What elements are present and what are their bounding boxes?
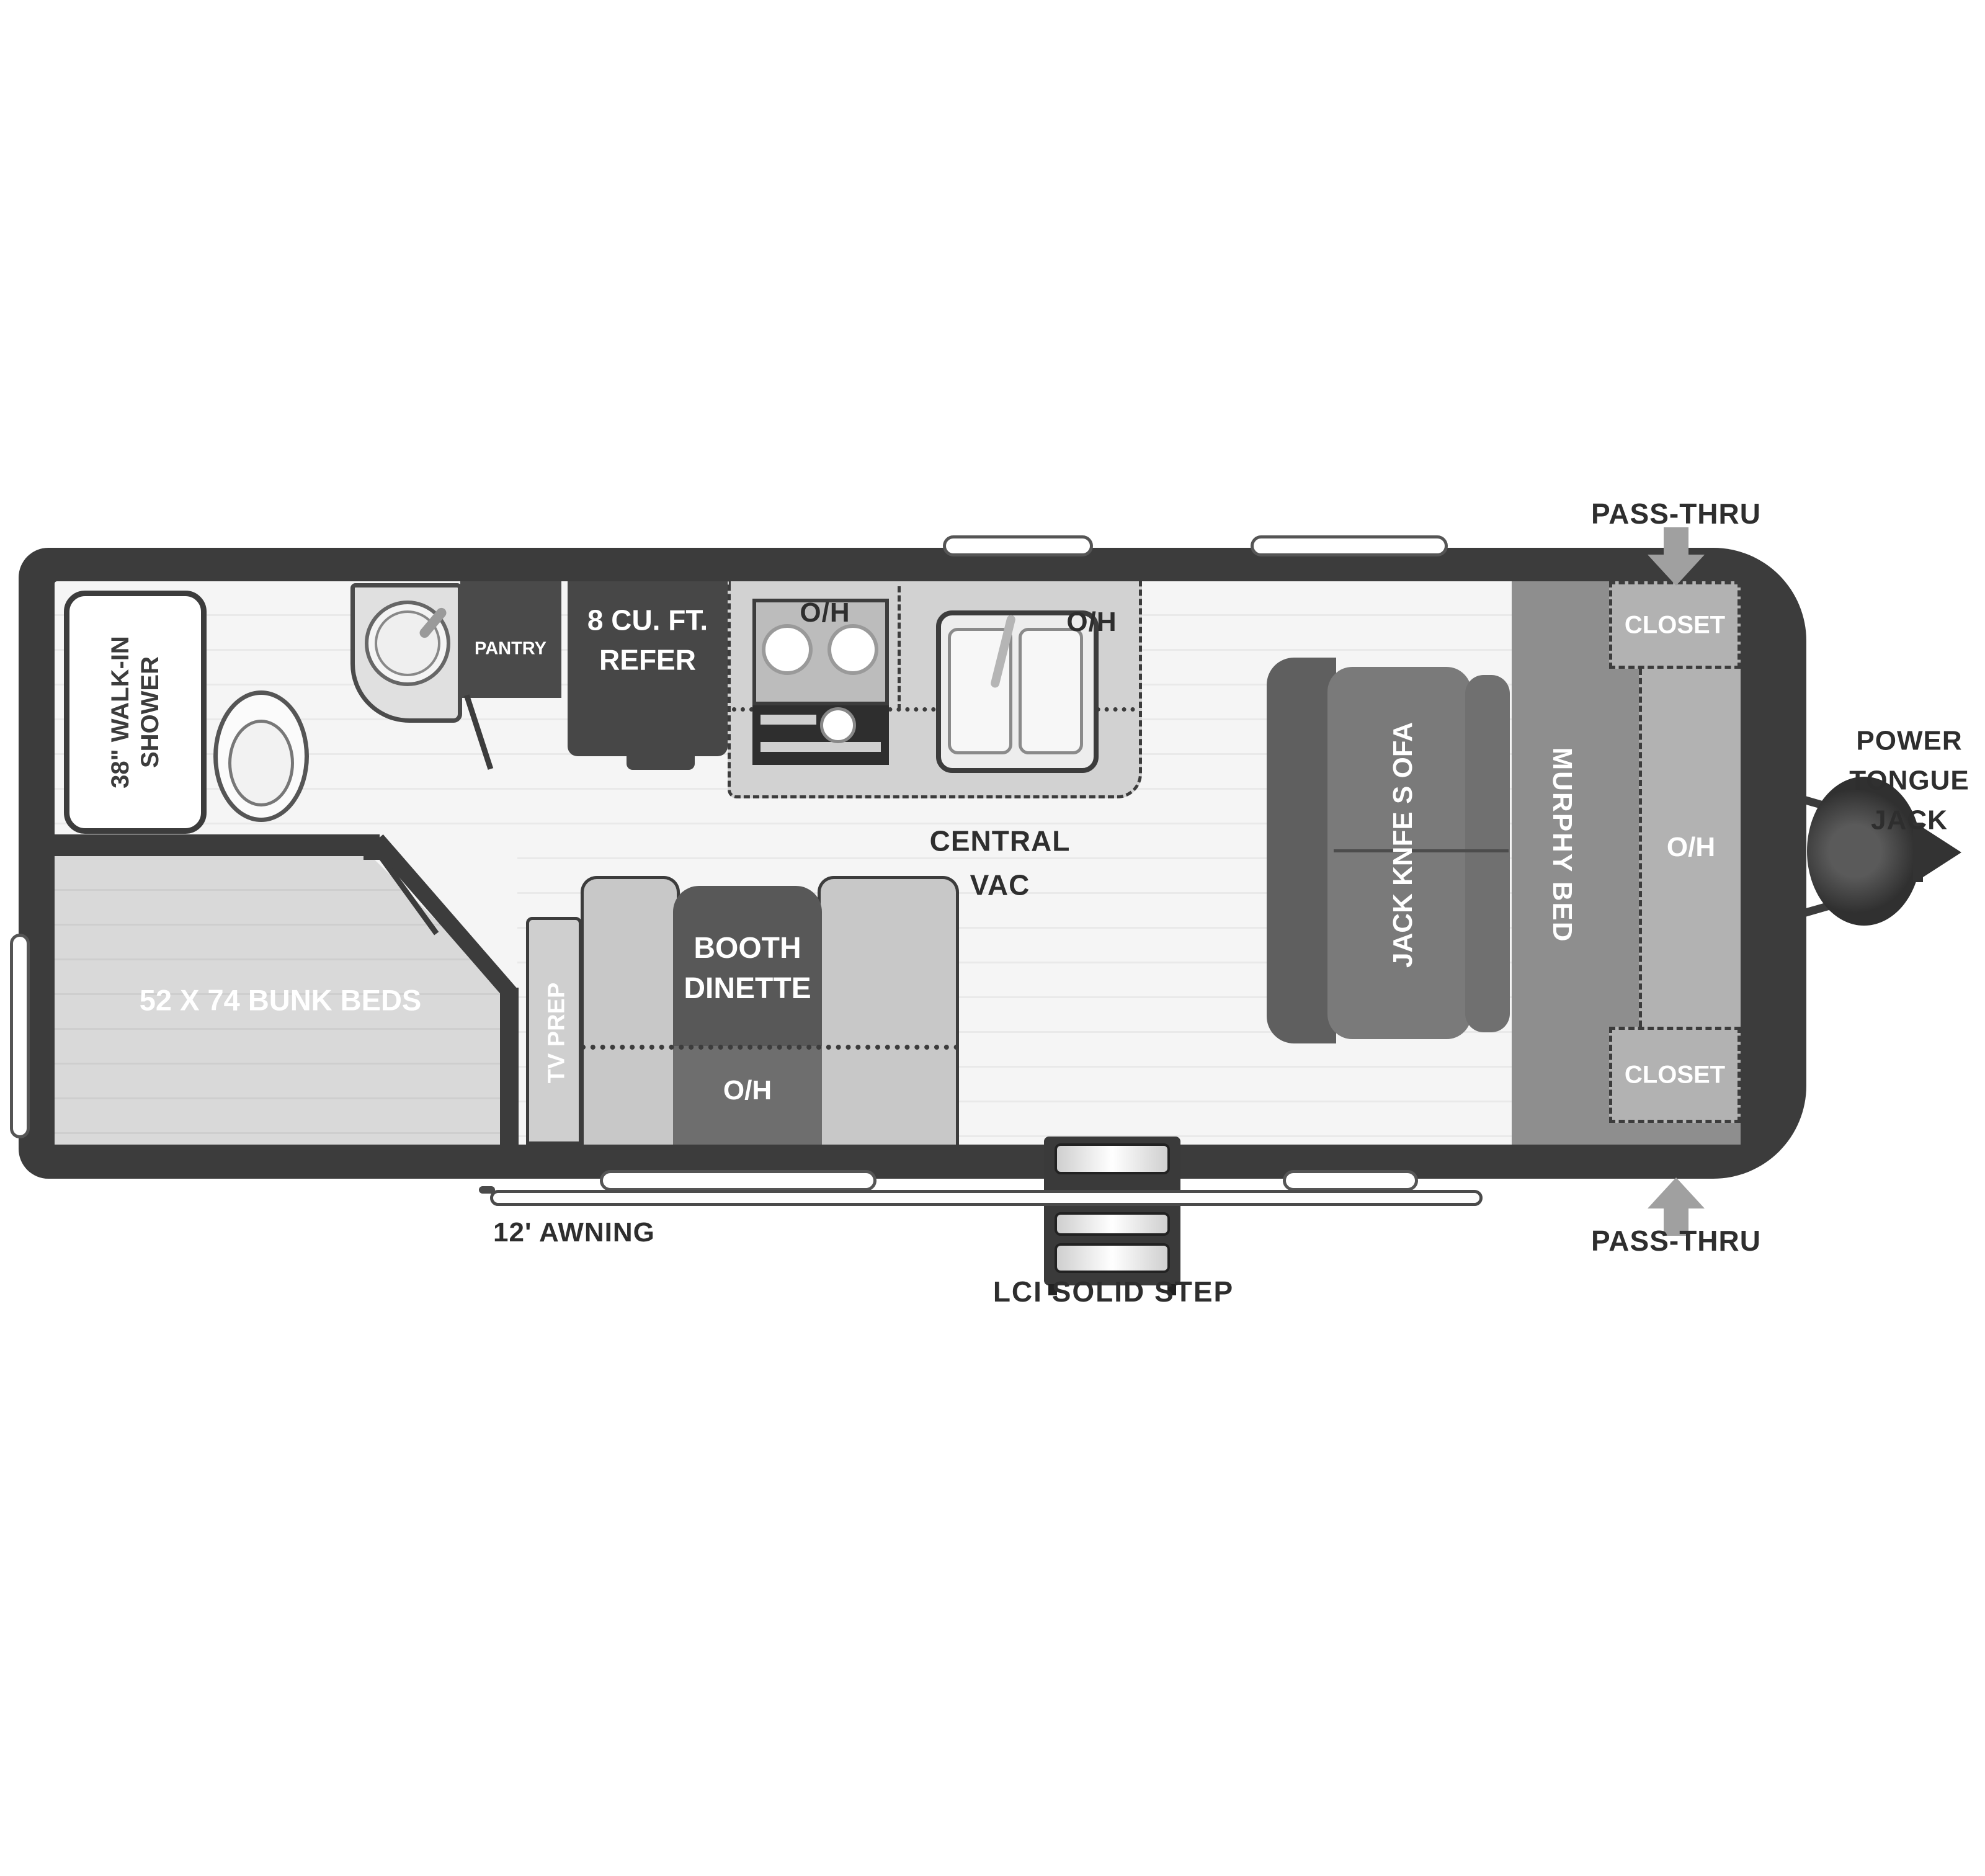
refrigerator-label-line1: 8 CU. FT. bbox=[587, 601, 708, 640]
stove-burner-icon bbox=[827, 624, 878, 675]
murphy-bed-label: MURPHY BED bbox=[1546, 747, 1577, 942]
refrigerator-label-line2: REFER bbox=[587, 640, 708, 680]
central-vac-line1: CENTRAL bbox=[930, 820, 1071, 864]
power-tongue-jack-label: POWER TONGUE JACK bbox=[1849, 721, 1969, 839]
step-tread bbox=[1055, 1212, 1170, 1236]
step-tread bbox=[1055, 1243, 1170, 1273]
overhead-label-front: O/H bbox=[1667, 832, 1715, 863]
closet-bottom-label: CLOSET bbox=[1625, 1061, 1725, 1089]
jackknife-sofa-label: JACK KNFE S OFA bbox=[1388, 722, 1419, 968]
sink-bowl-right bbox=[1019, 628, 1083, 754]
oven-vent bbox=[761, 715, 816, 725]
toilet-seat bbox=[228, 720, 294, 806]
oven-vent bbox=[761, 742, 881, 752]
tv-prep-label: TV PREP bbox=[544, 983, 571, 1084]
overhead-label-sink: O/H bbox=[1066, 607, 1117, 638]
jackknife-sofa-seam bbox=[1334, 849, 1509, 852]
booth-dinette-line1: BOOTH bbox=[684, 929, 811, 969]
pass-thru-label-top: PASS-THRU bbox=[1591, 497, 1761, 530]
shower-label: 38" WALK-IN SHOWER bbox=[105, 636, 165, 788]
overhead-label-stove: O/H bbox=[800, 597, 850, 628]
bunk-room-wall bbox=[500, 988, 519, 1145]
dinette-bench-right bbox=[818, 876, 959, 1145]
floorplan-diagram: 52 X 74 BUNK BEDS 38" WALK-IN SHOWER PAN… bbox=[0, 0, 1985, 1876]
pantry-label: PANTRY bbox=[475, 639, 546, 659]
pass-thru-arrow-bottom-head bbox=[1648, 1177, 1705, 1208]
bathroom-wall bbox=[19, 834, 380, 856]
window-bottom-bedroom bbox=[1283, 1170, 1418, 1191]
refrigerator-handle bbox=[627, 756, 695, 770]
closet-top-label: CLOSET bbox=[1625, 612, 1725, 640]
awning-bar bbox=[490, 1190, 1483, 1206]
window-top-kitchen bbox=[943, 535, 1093, 556]
bathroom-door-hinge bbox=[364, 837, 386, 860]
dinette-overhead-dotted-line bbox=[581, 1045, 959, 1050]
window-top-sofa bbox=[1251, 535, 1448, 556]
jackknife-sofa-back bbox=[1267, 658, 1336, 1043]
power-tongue-jack-line1: POWER bbox=[1849, 721, 1969, 761]
refrigerator-label: 8 CU. FT. REFER bbox=[587, 601, 708, 681]
pass-thru-arrow-top-head bbox=[1648, 555, 1705, 586]
pass-thru-label-bottom: PASS-THRU bbox=[1591, 1224, 1761, 1257]
overhead-label-dinette: O/H bbox=[723, 1075, 772, 1106]
booth-dinette-label: BOOTH DINETTE bbox=[684, 929, 811, 1009]
booth-dinette-line2: DINETTE bbox=[684, 969, 811, 1009]
step-tread bbox=[1055, 1143, 1170, 1174]
bunk-beds-label: 52 X 74 BUNK BEDS bbox=[140, 983, 422, 1017]
steps-label: LCI SOLID STEP bbox=[993, 1275, 1234, 1308]
dinette-bench-left bbox=[581, 876, 680, 1145]
counter-dashed-divider bbox=[898, 586, 901, 710]
awning-label: 12' AWNING bbox=[493, 1217, 655, 1248]
shower-label-line2: SHOWER bbox=[135, 636, 165, 788]
jackknife-sofa-arm bbox=[1465, 675, 1510, 1032]
power-tongue-jack-line3: JACK bbox=[1849, 800, 1969, 840]
shower-label-line1: 38" WALK-IN bbox=[105, 636, 135, 788]
window-bottom-dinette bbox=[600, 1170, 877, 1191]
window-rear bbox=[10, 934, 30, 1138]
pass-thru-arrow-top bbox=[1664, 527, 1688, 555]
oven-knob-icon bbox=[820, 707, 856, 743]
power-tongue-jack-line2: TONGUE bbox=[1849, 761, 1969, 800]
stove-burner-icon bbox=[762, 624, 813, 675]
